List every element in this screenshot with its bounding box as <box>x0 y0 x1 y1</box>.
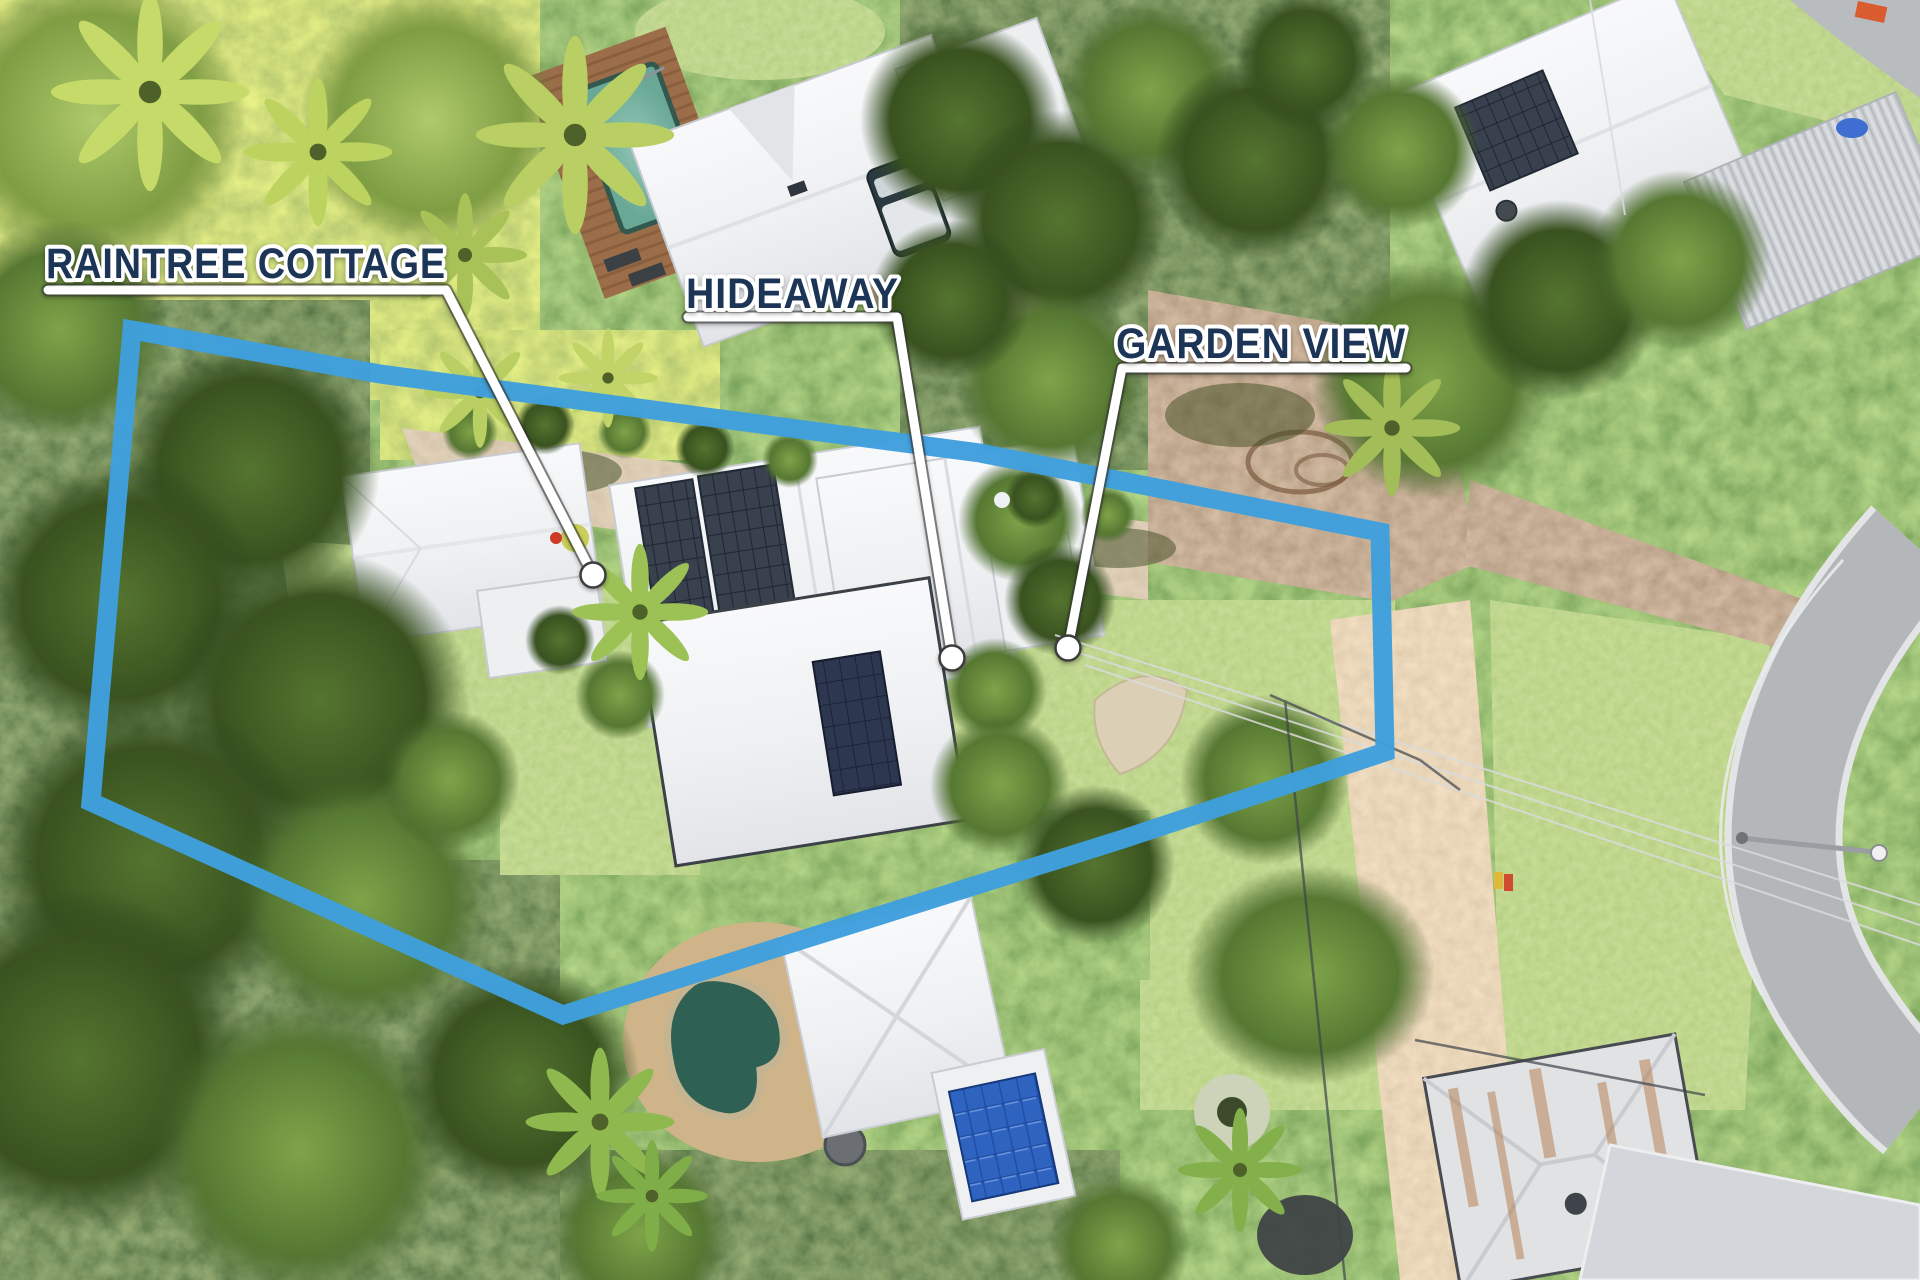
pointer-dot-raintree <box>581 563 606 588</box>
outdoor-table <box>994 492 1010 508</box>
street-light-lamp <box>1871 845 1887 861</box>
tree-canopy-large-east <box>1185 865 1435 1085</box>
palm-tree <box>476 36 674 234</box>
palm-tree <box>596 1140 708 1252</box>
tree-canopy <box>380 710 520 850</box>
palm-tree <box>244 78 393 227</box>
palm-tree <box>1324 360 1460 496</box>
palm-tree <box>1178 1108 1302 1232</box>
pointer-dot-hideaway <box>940 646 965 671</box>
bush <box>762 432 818 488</box>
aerial-property-photo: RAINTREE COTTAGE HIDEAWAY GARDEN VIEW <box>0 0 1920 1280</box>
blue-tarp <box>1836 118 1868 138</box>
label-raintree-cottage: RAINTREE COTTAGE <box>46 240 446 288</box>
power-pole <box>1736 832 1748 844</box>
red-object <box>550 532 562 544</box>
pointer-dot-garden-view <box>1056 636 1081 661</box>
label-garden-view: GARDEN VIEW <box>1116 320 1406 368</box>
roof-bottom-house <box>638 578 968 866</box>
red-marker <box>1504 874 1513 891</box>
tree-canopy <box>1590 170 1770 350</box>
aerial-scene: RAINTREE COTTAGE HIDEAWAY GARDEN VIEW <box>0 0 1920 1280</box>
palm-tree <box>51 0 249 191</box>
neighbour-house-bottom <box>638 578 968 866</box>
yellow-marker <box>1494 872 1503 889</box>
label-hideaway: HIDEAWAY <box>686 270 899 318</box>
bush <box>575 650 665 740</box>
